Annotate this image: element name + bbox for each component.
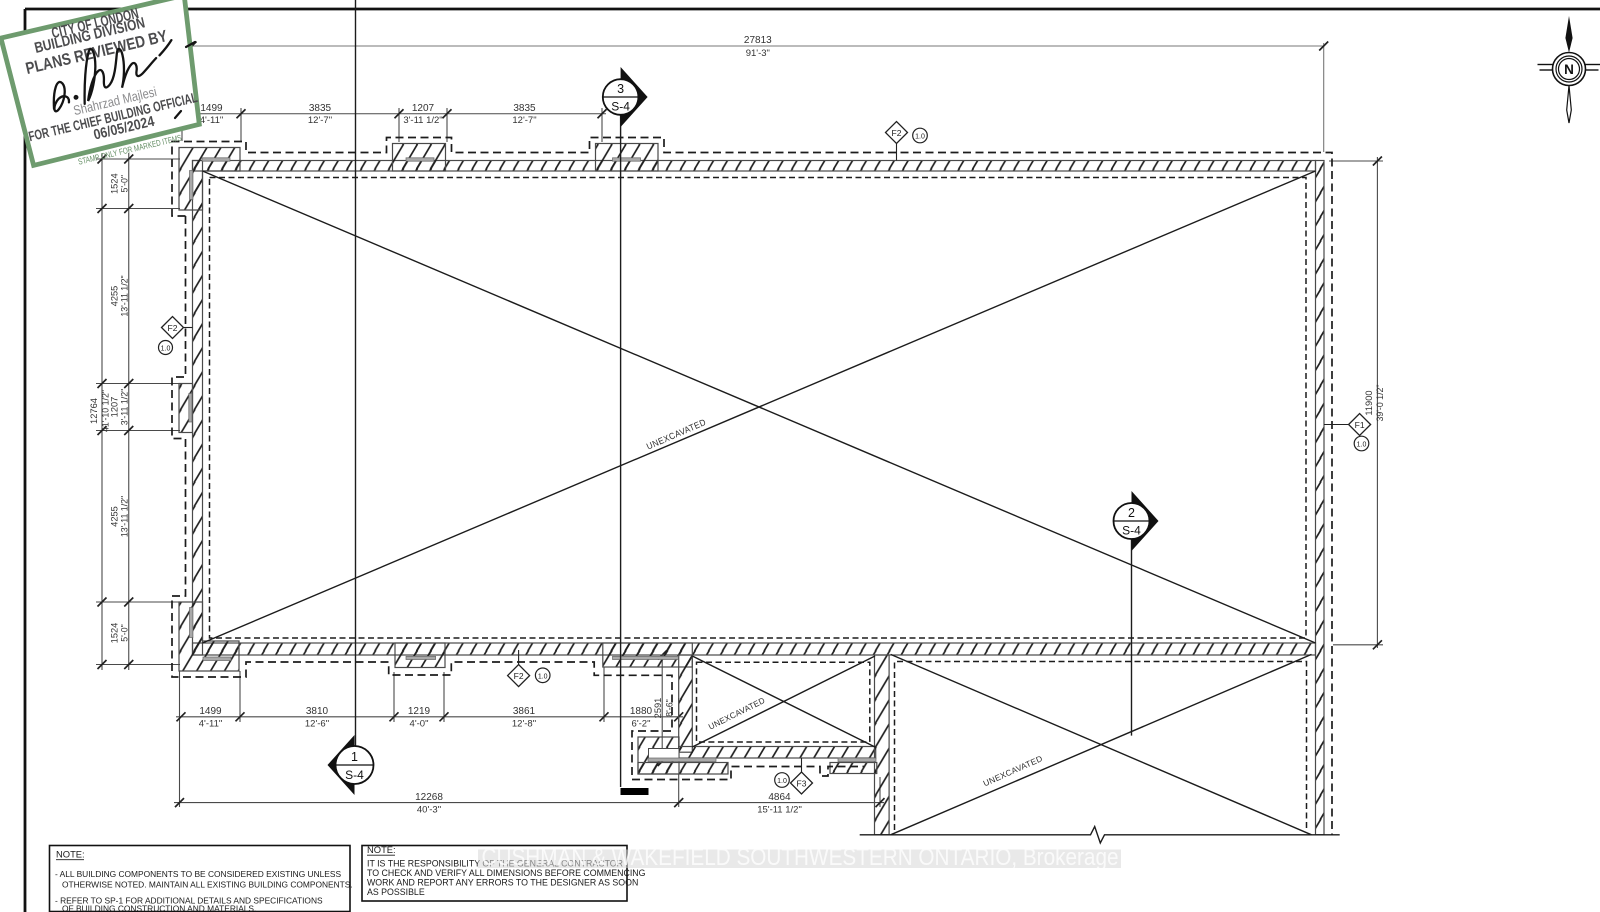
svg-text:1524: 1524 [110,623,120,644]
svg-text:1219: 1219 [408,706,431,717]
svg-text:F1: F1 [1355,420,1365,430]
svg-text:S-4: S-4 [1122,524,1141,538]
svg-text:1.0: 1.0 [777,778,787,785]
svg-text:AS POSSIBLE: AS POSSIBLE [367,887,425,897]
svg-text:2: 2 [1128,506,1135,520]
svg-text:12'-6": 12'-6" [305,719,329,730]
svg-text:3: 3 [617,82,624,96]
svg-text:1499: 1499 [199,706,222,717]
svg-text:15'-11 1/2": 15'-11 1/2" [757,805,802,816]
svg-text:4255: 4255 [110,286,120,307]
svg-text:4'-11": 4'-11" [200,115,224,126]
svg-text:12'-8": 12'-8" [512,719,536,730]
svg-text:F2: F2 [892,128,902,138]
svg-text:3861: 3861 [513,706,536,717]
svg-text:12'-7": 12'-7" [512,115,536,126]
svg-text:NOTE:: NOTE: [56,849,85,860]
svg-text:3'-11 1/2": 3'-11 1/2" [403,115,442,126]
svg-text:91'-3": 91'-3" [746,48,770,59]
svg-text:WORK AND REPORT ANY ERRORS TO: WORK AND REPORT ANY ERRORS TO THE DESIGN… [367,878,638,888]
svg-text:3810: 3810 [306,706,329,717]
svg-text:1524: 1524 [110,173,120,194]
svg-text:13'-11 1/2": 13'-11 1/2" [120,496,130,537]
svg-text:1499: 1499 [200,103,223,114]
svg-text:39'-0 1/2": 39'-0 1/2" [1375,384,1385,421]
svg-text:6'-2": 6'-2" [632,719,651,730]
svg-text:1.0: 1.0 [538,673,548,680]
svg-text:12764: 12764 [89,398,99,424]
svg-text:F2: F2 [514,671,524,681]
svg-text:3835: 3835 [513,103,536,114]
svg-text:- ALL BUILDING COMPONENTS TO B: - ALL BUILDING COMPONENTS TO BE CONSIDER… [55,869,341,879]
svg-text:12'-7": 12'-7" [308,115,332,126]
svg-text:OF BUILDING CONSTRUCTION AND M: OF BUILDING CONSTRUCTION AND MATERIALS. [62,904,256,912]
svg-text:4864: 4864 [768,792,791,803]
svg-text:F2: F2 [168,323,178,333]
svg-text:1.0: 1.0 [1357,442,1367,449]
svg-text:OTHERWISE NOTED. MAINTAIN ALL: OTHERWISE NOTED. MAINTAIN ALL EXISTING B… [62,880,353,890]
svg-text:5'-0": 5'-0" [120,624,130,642]
svg-text:N: N [1564,62,1574,77]
svg-text:4'-11": 4'-11" [199,719,223,730]
svg-text:1.0: 1.0 [161,346,171,353]
svg-text:4'-0": 4'-0" [410,719,429,730]
svg-text:3835: 3835 [309,103,332,114]
svg-text:8'-6": 8'-6" [665,699,675,717]
svg-text:S-4: S-4 [345,768,364,782]
svg-text:CUSHMAN & WAKEFIELD SOUTHWESTE: CUSHMAN & WAKEFIELD SOUTHWESTERN ONTARIO… [482,844,1119,871]
svg-text:S-4: S-4 [611,100,630,114]
svg-text:13'-11 1/2": 13'-11 1/2" [120,275,130,316]
svg-text:27813: 27813 [744,35,772,46]
svg-text:3'-11 1/2": 3'-11 1/2" [120,389,130,425]
svg-text:F3: F3 [797,779,807,789]
svg-text:1.0: 1.0 [915,134,925,141]
svg-text:1880: 1880 [630,706,653,717]
svg-text:1207: 1207 [110,397,120,418]
svg-text:2591: 2591 [653,698,663,719]
svg-text:1: 1 [351,750,358,764]
svg-text:40'-3": 40'-3" [417,805,441,816]
svg-text:4255: 4255 [110,506,120,527]
svg-text:12268: 12268 [415,792,443,803]
svg-text:NOTE:: NOTE: [367,844,396,855]
svg-text:1207: 1207 [412,103,435,114]
svg-text:5'-0": 5'-0" [120,175,130,193]
svg-text:11900: 11900 [1364,390,1374,415]
